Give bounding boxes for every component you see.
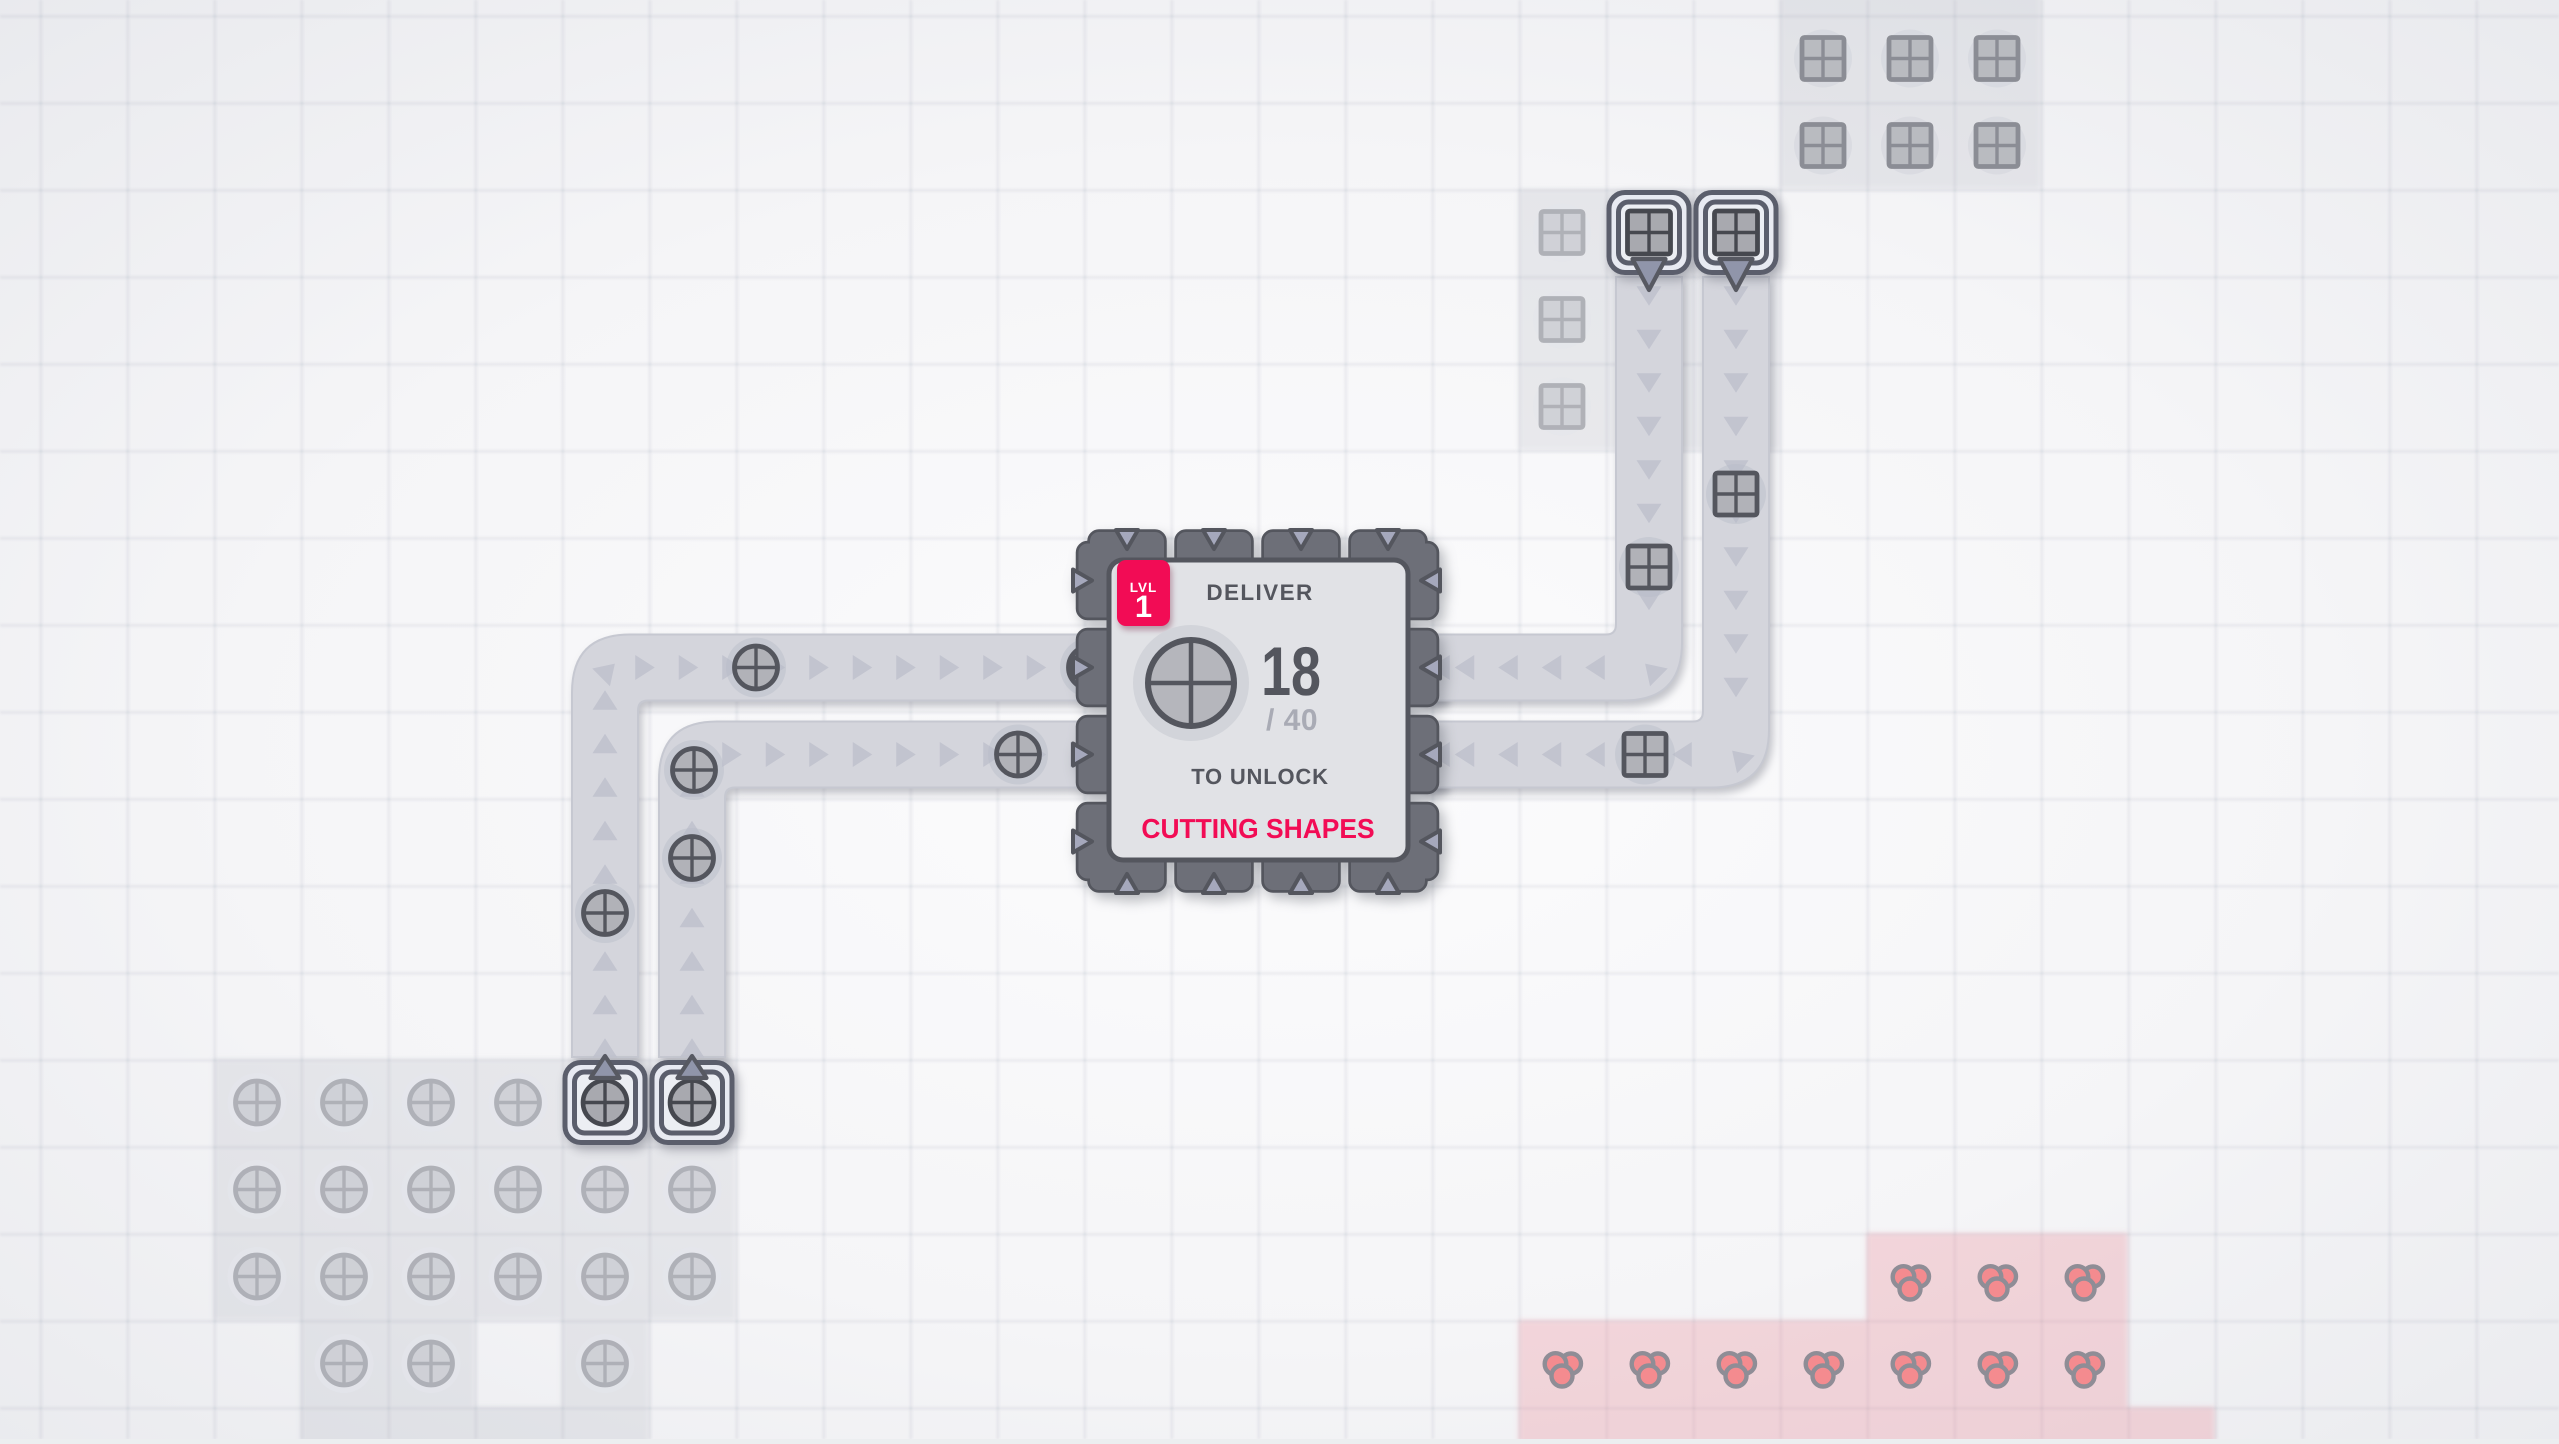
svg-text:CUTTING SHAPES: CUTTING SHAPES [1141,813,1374,844]
svg-text:18: 18 [1261,633,1321,710]
svg-text:TO UNLOCK: TO UNLOCK [1191,764,1329,789]
svg-text:DELIVER: DELIVER [1206,580,1313,605]
svg-text:/ 40: / 40 [1266,704,1318,737]
svg-text:1: 1 [1135,589,1152,624]
